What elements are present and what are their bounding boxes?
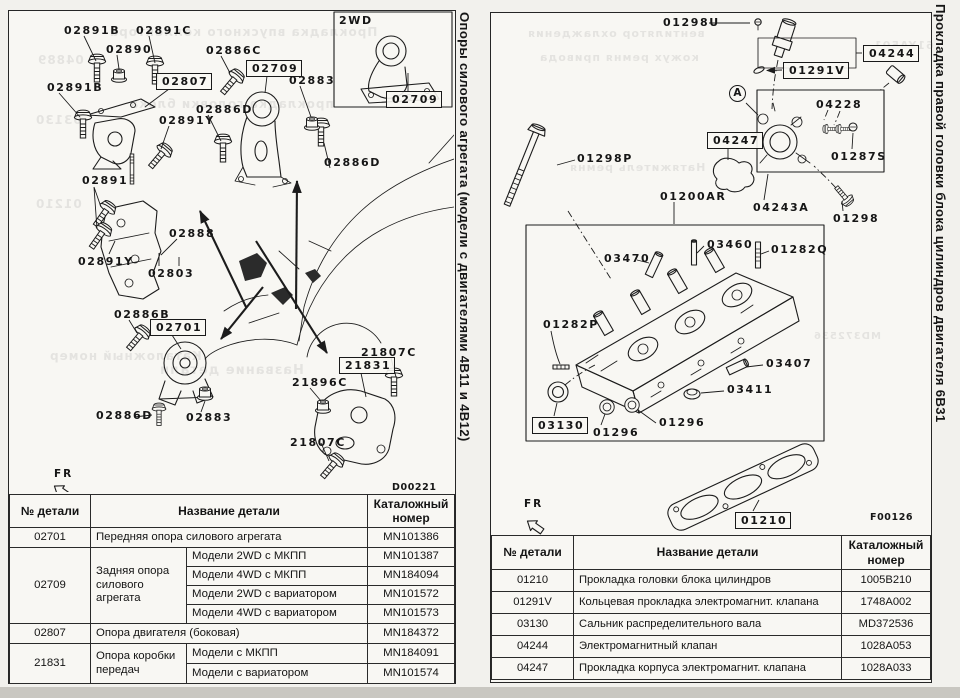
table-row: 04247 Прокладка корпуса электромагнит. к… xyxy=(492,658,931,680)
part-number-label: 01291V xyxy=(783,62,849,79)
part-number-label: 02890 xyxy=(106,44,152,55)
variant-cell: Модели с МКПП xyxy=(187,644,368,664)
part-number-cell: 02807 xyxy=(10,624,91,644)
part-number-label: 01282Q xyxy=(771,244,828,255)
table-row: 01210 Прокладка головки блока цилиндров … xyxy=(492,570,931,592)
part-number-label: 21807C xyxy=(290,437,346,448)
bleedthrough-text: кожух ремня привода xyxy=(539,51,699,64)
fr-direction-label: FR xyxy=(54,469,73,480)
part-number-label: 02891Y xyxy=(78,256,134,267)
part-number-label: 02886D xyxy=(324,157,381,168)
bleedthrough-text: 03130 xyxy=(35,113,82,127)
part-name-cell: Прокладка корпуса электромагнит. клапана xyxy=(574,658,842,680)
part-number-label: 01287S xyxy=(831,151,887,162)
part-name-cell: Кольцевая прокладка электромагнит. клапа… xyxy=(574,592,842,614)
left-page-vertical-title: Опоры силового агрегата (модели с двигат… xyxy=(457,12,472,488)
part-name-cell: Прокладка головки блока цилиндров xyxy=(574,570,842,592)
table-row: 21831 Опора коробки передач Модели с МКП… xyxy=(10,644,455,664)
col-header-code: Каталожный номер xyxy=(842,536,931,570)
variant-cell: Модели 2WD с вариатором xyxy=(187,586,368,605)
variant-cell: Модели 4WD с МКПП xyxy=(187,567,368,586)
figure-code: F00126 xyxy=(870,513,913,523)
part-number-label: 01298U xyxy=(663,17,720,28)
part-number-label: 02891B xyxy=(64,25,120,36)
col-header-num: № детали xyxy=(10,495,91,528)
part-number-label: 03411 xyxy=(727,384,773,395)
col-header-code: Каталожный номер xyxy=(368,495,455,528)
part-name-cell: Опора коробки передач xyxy=(91,644,187,684)
part-number-label: 02701 xyxy=(150,319,206,336)
catalog-code-cell: 1748A002 xyxy=(842,592,931,614)
catalog-code-cell: MN101387 xyxy=(368,548,455,567)
part-number-label: 02883 xyxy=(186,412,232,423)
part-number-label: 04228 xyxy=(816,99,862,110)
part-number-label: 02888 xyxy=(169,228,215,239)
part-number-label: 02891C xyxy=(136,25,192,36)
catalog-code-cell: MN184091 xyxy=(368,644,455,664)
part-name-cell: Задняя опора силового агрегата xyxy=(91,548,187,624)
col-header-name: Название детали xyxy=(91,495,368,528)
part-number-label: 02807 xyxy=(156,73,212,90)
part-number-label: 02883 xyxy=(289,75,335,86)
part-number-label: 02886C xyxy=(206,45,262,56)
scan-bottom-band xyxy=(0,687,960,698)
part-number-label: 02709 xyxy=(386,91,442,108)
catalog-code-cell: MN101573 xyxy=(368,605,455,624)
col-header-name: Название детали xyxy=(574,536,842,570)
part-number-cell: 02701 xyxy=(10,528,91,548)
part-number-label: 01296 xyxy=(593,427,639,438)
part-number-label: 01210 xyxy=(735,512,791,529)
part-number-label: 02803 xyxy=(148,268,194,279)
left-page: 02891B02891C0289002886C02709028070288302… xyxy=(8,10,456,684)
table-row: 02807 Опора двигателя (боковая) MN184372 xyxy=(10,624,455,644)
part-number-label: 03407 xyxy=(766,358,812,369)
catalog-code-cell: MN101572 xyxy=(368,586,455,605)
bleedthrough-text: 01210 xyxy=(35,197,82,211)
part-number-cell: 04247 xyxy=(492,658,574,680)
part-number-label: 01200AR xyxy=(660,191,726,202)
fr-direction-label: FR xyxy=(524,499,543,510)
catalog-code-cell: 1028A033 xyxy=(842,658,931,680)
right-page-vertical-title: Прокладка правой головки блока цилиндров… xyxy=(933,4,948,478)
part-number-label: 21831 xyxy=(339,357,395,374)
catalog-code-cell: MN101574 xyxy=(368,664,455,684)
figure-code: D00221 xyxy=(392,483,437,493)
right-page: 01298U0424401291VA0422801287S0424701298P… xyxy=(490,12,932,683)
catalog-code-cell: 1005B210 xyxy=(842,570,931,592)
table-row: 02701 Передняя опора силового агрегата M… xyxy=(10,528,455,548)
part-number-label: 01282P xyxy=(543,319,599,330)
catalog-code-cell: MN184094 xyxy=(368,567,455,586)
part-number-label: 02891B xyxy=(47,82,103,93)
part-number-label: 02891Y xyxy=(159,115,215,126)
part-number-cell: 01291V xyxy=(492,592,574,614)
part-name-cell: Сальник распределительного вала xyxy=(574,614,842,636)
part-number-label: 02886D xyxy=(96,410,153,421)
view-callout-a: A xyxy=(729,85,746,102)
right-parts-table: № детали Название детали Каталожный номе… xyxy=(491,535,931,680)
part-number-label: 03130 xyxy=(532,417,588,434)
catalog-scan: 02891B02891C0289002886C02709028070288302… xyxy=(0,0,960,698)
part-number-cell: 02709 xyxy=(10,548,91,624)
bleedthrough-text: Каталожный номер xyxy=(49,349,202,363)
table-row: 02709 Задняя опора силового агрегата Мод… xyxy=(10,548,455,567)
col-header-num: № детали xyxy=(492,536,574,570)
part-number-label: 04247 xyxy=(707,132,763,149)
part-name-cell: Опора двигателя (боковая) xyxy=(91,624,368,644)
part-number-cell: 04244 xyxy=(492,636,574,658)
part-number-label: 21896C xyxy=(292,377,348,388)
part-number-cell: 21831 xyxy=(10,644,91,684)
table-row: 01291V Кольцевая прокладка электромагнит… xyxy=(492,592,931,614)
part-number-label: 01296 xyxy=(659,417,705,428)
part-number-label: 03470 xyxy=(604,253,650,264)
catalog-code-cell: MN101386 xyxy=(368,528,455,548)
part-name-cell: Электромагнитный клапан xyxy=(574,636,842,658)
variant-cell: Модели 4WD с вариатором xyxy=(187,605,368,624)
part-number-cell: 01210 xyxy=(492,570,574,592)
part-number-label: 02891 xyxy=(82,175,128,186)
part-number-label: 03460 xyxy=(707,239,753,250)
bleedthrough-text: Название детали xyxy=(159,363,304,378)
bleedthrough-text: 04889 xyxy=(37,53,84,67)
variant-cell: Модели с вариатором xyxy=(187,664,368,684)
table-row: 04244 Электромагнитный клапан 1028A053 xyxy=(492,636,931,658)
variant-cell: Модели 2WD с МКПП xyxy=(187,548,368,567)
part-number-label: 01298 xyxy=(833,213,879,224)
bleedthrough-text: MD372536 xyxy=(813,331,881,342)
part-number-label: 01298P xyxy=(577,153,633,164)
part-name-cell: Передняя опора силового агрегата xyxy=(91,528,368,548)
part-number-label: 04243A xyxy=(753,202,809,213)
catalog-code-cell: 1028A053 xyxy=(842,636,931,658)
catalog-code-cell: MD372536 xyxy=(842,614,931,636)
left-parts-table: № детали Название детали Каталожный номе… xyxy=(9,494,455,684)
catalog-code-cell: MN184372 xyxy=(368,624,455,644)
part-number-label: 04244 xyxy=(863,45,919,62)
part-number-cell: 03130 xyxy=(492,614,574,636)
part-number-label: 2WD xyxy=(339,15,373,26)
table-row: 03130 Сальник распределительного вала MD… xyxy=(492,614,931,636)
